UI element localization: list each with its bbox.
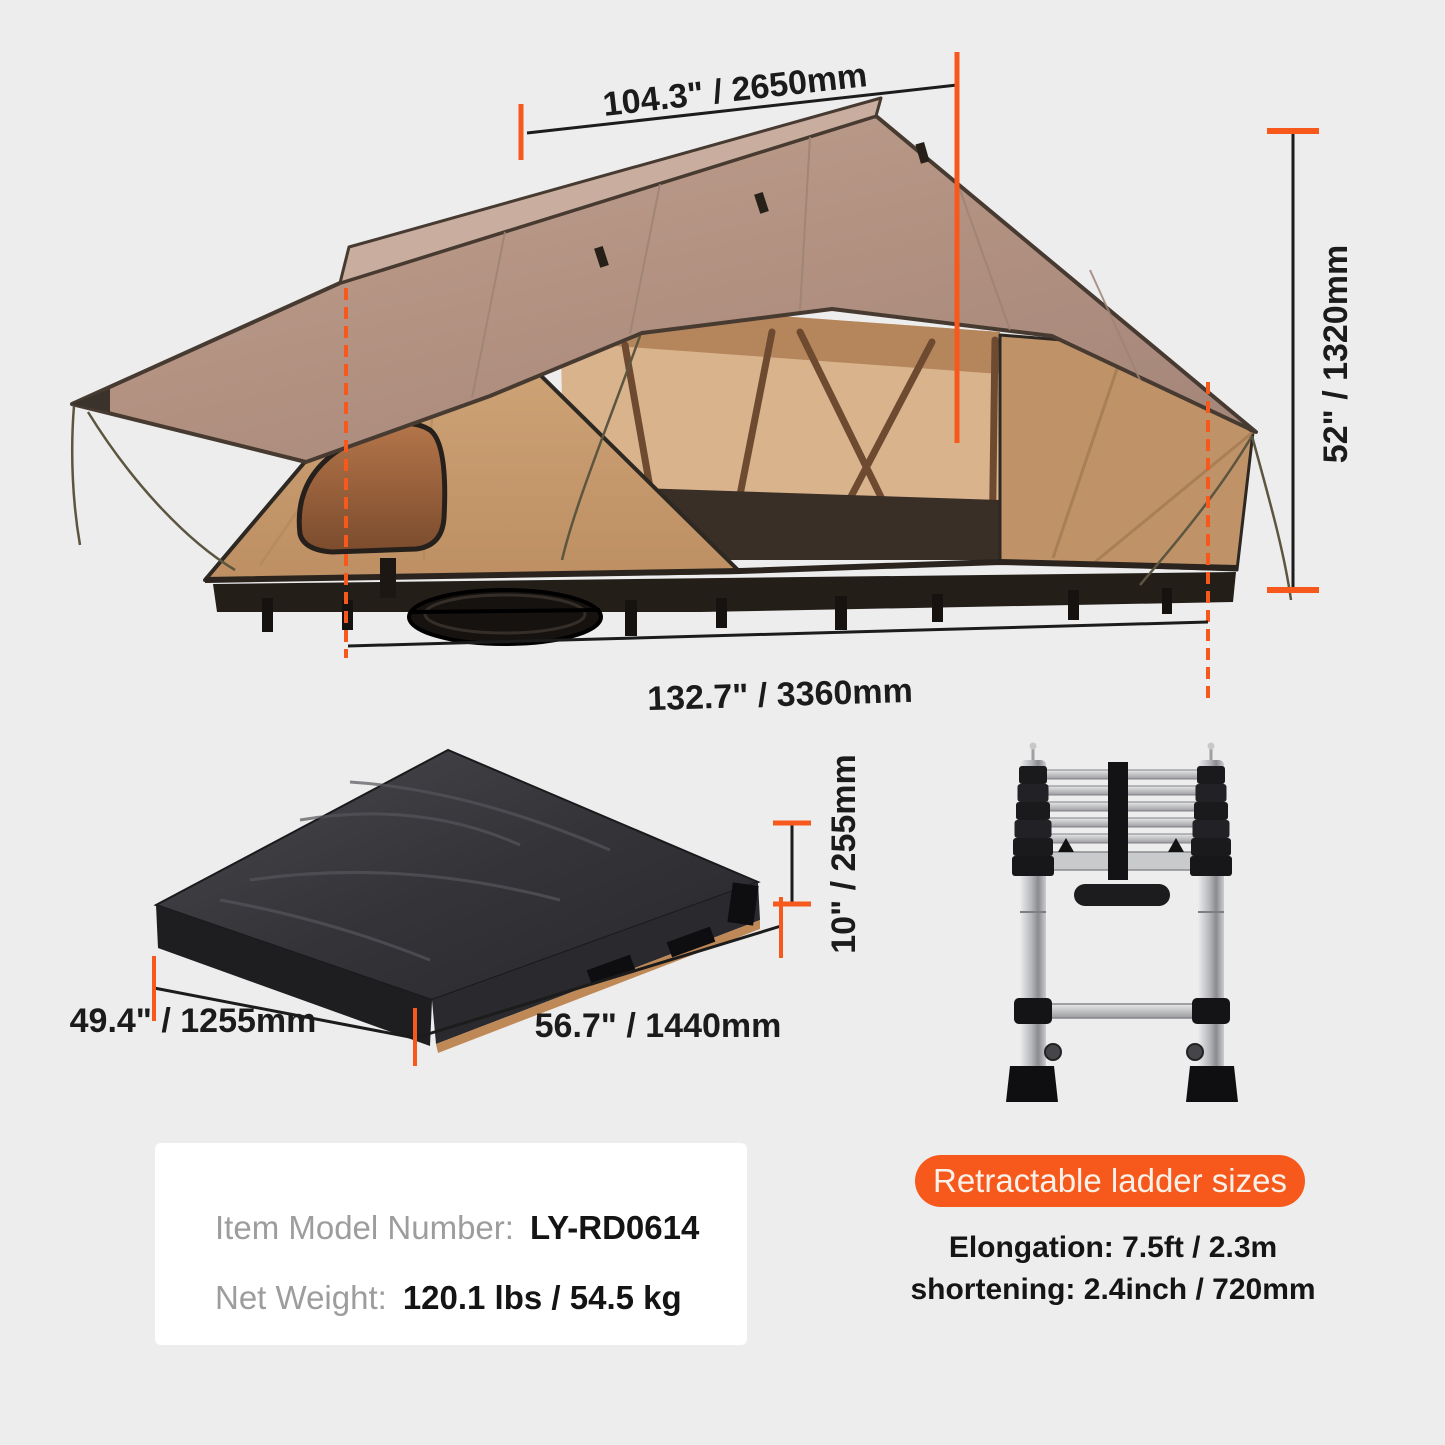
tent-illustration [72,98,1291,644]
model-number-label: Item Model Number: [215,1209,514,1246]
ladder-left-foot [1006,1066,1058,1102]
tent-length-label: 132.7" / 3360mm [647,674,914,716]
ladder-shortening-text: shortening: 2.4inch / 720mm [890,1272,1336,1308]
net-weight-row: Net Weight:120.1 lbs / 54.5 kg [215,1279,682,1317]
tent-height-label: 52" / 1320mm [1319,245,1353,463]
net-weight-value: 120.1 lbs / 54.5 kg [403,1279,682,1316]
model-number-row: Item Model Number:LY-RD0614 [215,1209,699,1247]
ladder-right-foot [1186,1066,1238,1102]
product-info-card: Item Model Number:LY-RD0614 Net Weight:1… [155,1143,747,1345]
package-length-label: 56.7" / 1440mm [535,1009,782,1043]
product-dimension-diagram: 104.3" / 2650mm 52" / 1320mm 132.7" / 33… [0,0,1445,1445]
model-number-value: LY-RD0614 [530,1209,699,1246]
ladder-elongation-text: Elongation: 7.5ft / 2.3m [890,1230,1336,1266]
package-depth-label: 49.4" / 1255mm [70,1004,317,1038]
package-height-label: 10" / 255mm [827,754,861,953]
ladder-sizes-badge: Retractable ladder sizes [915,1155,1305,1207]
ladder-lower-rung [1046,1004,1198,1018]
ladder-handle [1074,884,1170,906]
ladder-strap [1108,762,1128,880]
ladder-illustration [1006,743,1238,1103]
tent-under-basket [409,590,601,644]
net-weight-label: Net Weight: [215,1279,387,1316]
